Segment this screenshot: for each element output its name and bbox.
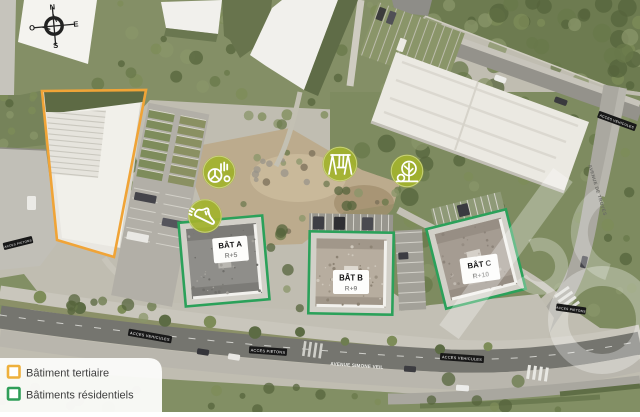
svg-text:S: S <box>53 41 59 50</box>
svg-text:R+9: R+9 <box>345 286 358 293</box>
svg-text:Bâtiment tertiaire: Bâtiment tertiaire <box>26 368 109 380</box>
svg-text:N: N <box>49 2 55 11</box>
svg-text:E: E <box>73 19 79 28</box>
svg-text:O: O <box>29 23 36 32</box>
svg-text:R+5: R+5 <box>224 252 237 260</box>
svg-text:Bâtiments résidentiels: Bâtiments résidentiels <box>26 390 134 402</box>
svg-text:BÂT B: BÂT B <box>339 274 363 283</box>
